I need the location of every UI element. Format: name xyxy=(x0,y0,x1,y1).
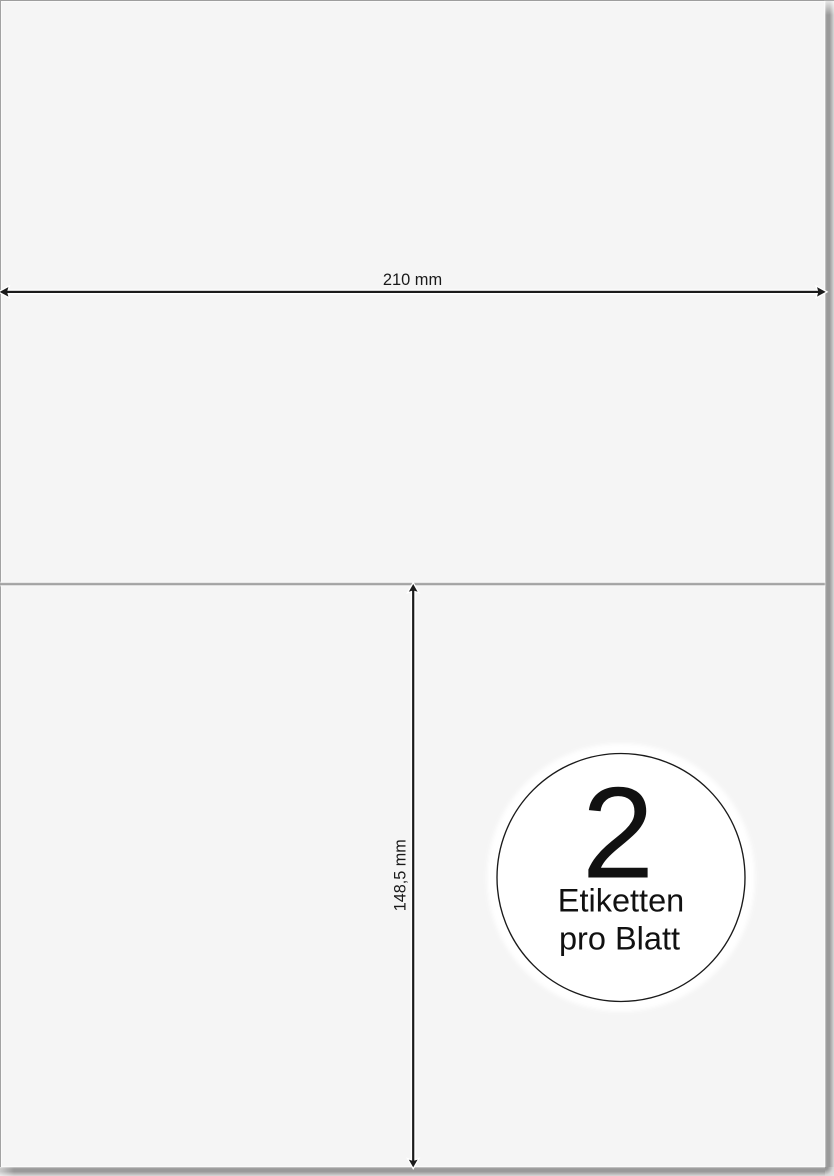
svg-text:pro Blatt: pro Blatt xyxy=(559,921,680,957)
svg-text:148,5 mm: 148,5 mm xyxy=(391,839,409,911)
svg-text:210 mm: 210 mm xyxy=(383,271,442,289)
svg-text:Etiketten: Etiketten xyxy=(558,883,684,919)
